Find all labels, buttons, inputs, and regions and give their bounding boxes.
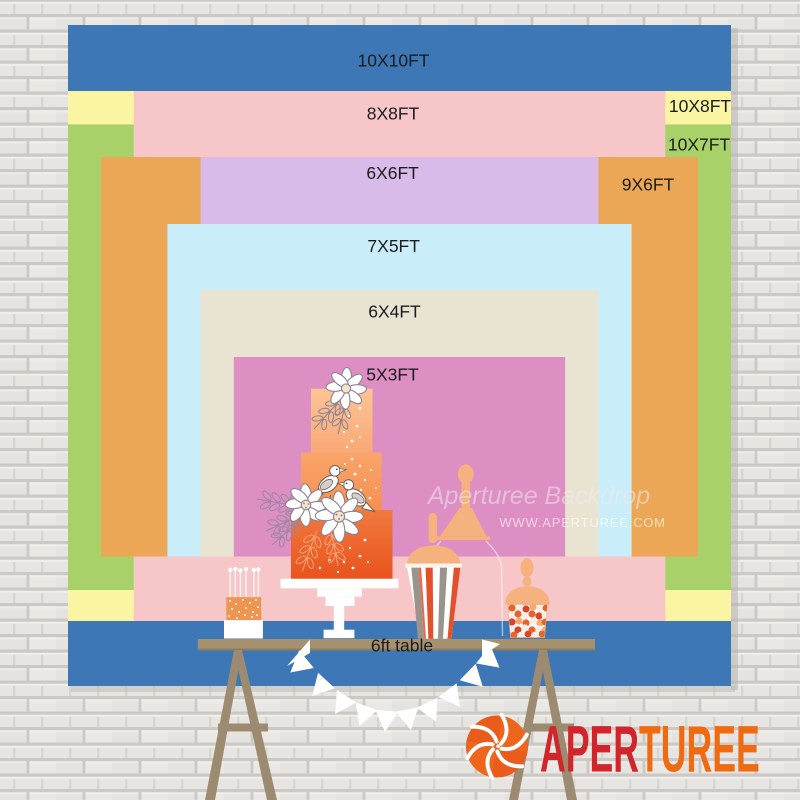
- svg-text:8X8FT: 8X8FT: [367, 104, 420, 124]
- svg-text:WWW.APERTUREE.COM: WWW.APERTUREE.COM: [499, 515, 665, 530]
- svg-text:5X3FT: 5X3FT: [366, 365, 419, 385]
- svg-text:APERTUREE: APERTUREE: [540, 713, 760, 786]
- svg-text:10X7FT: 10X7FT: [668, 135, 731, 155]
- svg-text:6ft table: 6ft table: [371, 636, 433, 656]
- svg-text:10X10FT: 10X10FT: [358, 51, 430, 71]
- svg-text:Aperturee Backdrop: Aperturee Backdrop: [426, 482, 650, 510]
- svg-text:9X6FT: 9X6FT: [622, 175, 675, 195]
- svg-text:6X6FT: 6X6FT: [366, 163, 419, 183]
- svg-text:10X8FT: 10X8FT: [669, 96, 732, 116]
- svg-text:7X5FT: 7X5FT: [367, 236, 420, 256]
- svg-text:6X4FT: 6X4FT: [368, 302, 421, 322]
